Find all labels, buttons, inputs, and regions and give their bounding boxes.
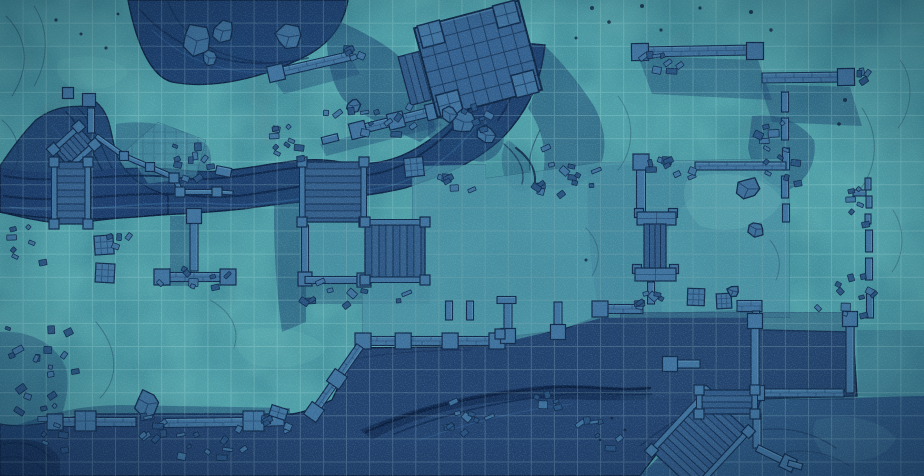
vignette [0,0,924,476]
battle-map[interactable] [0,0,924,476]
battle-map-canvas[interactable] [0,0,924,476]
